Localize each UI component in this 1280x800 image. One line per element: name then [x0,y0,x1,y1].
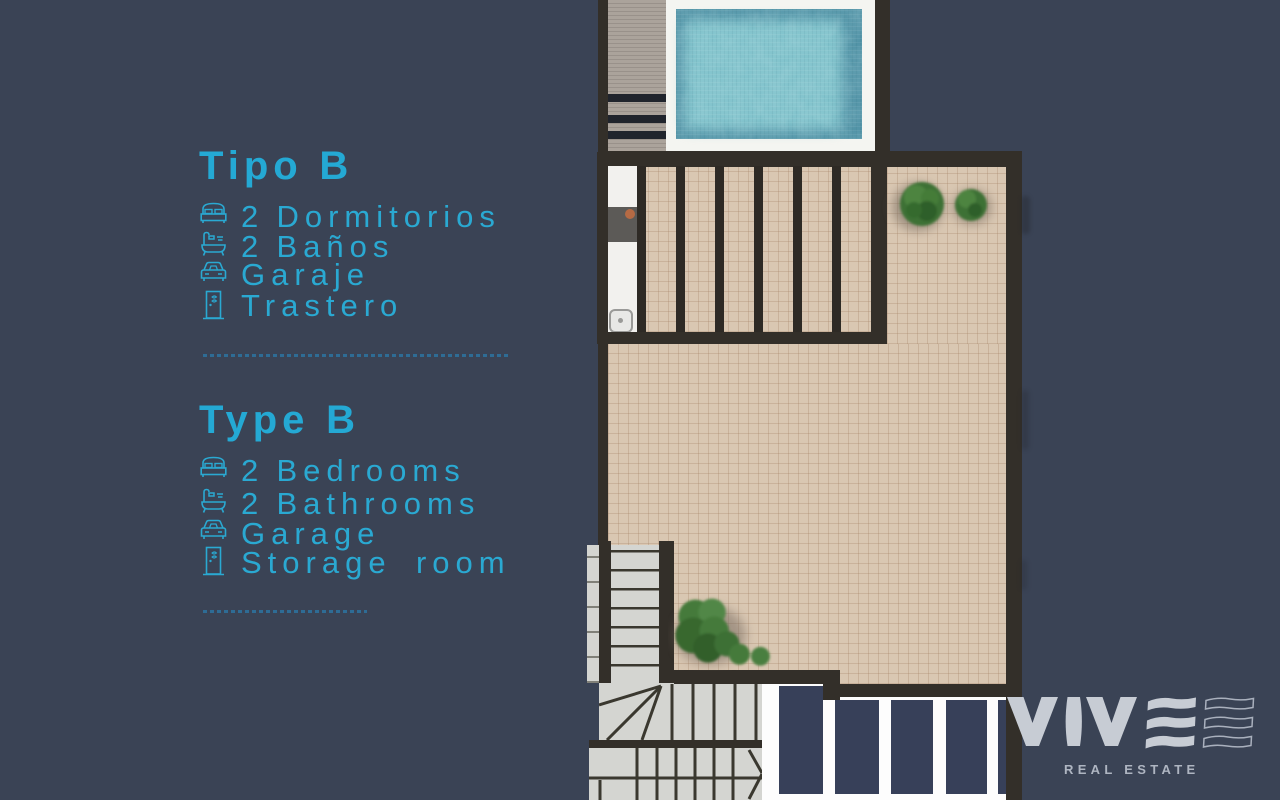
svg-text:REAL ESTATE: REAL ESTATE [1064,762,1199,777]
